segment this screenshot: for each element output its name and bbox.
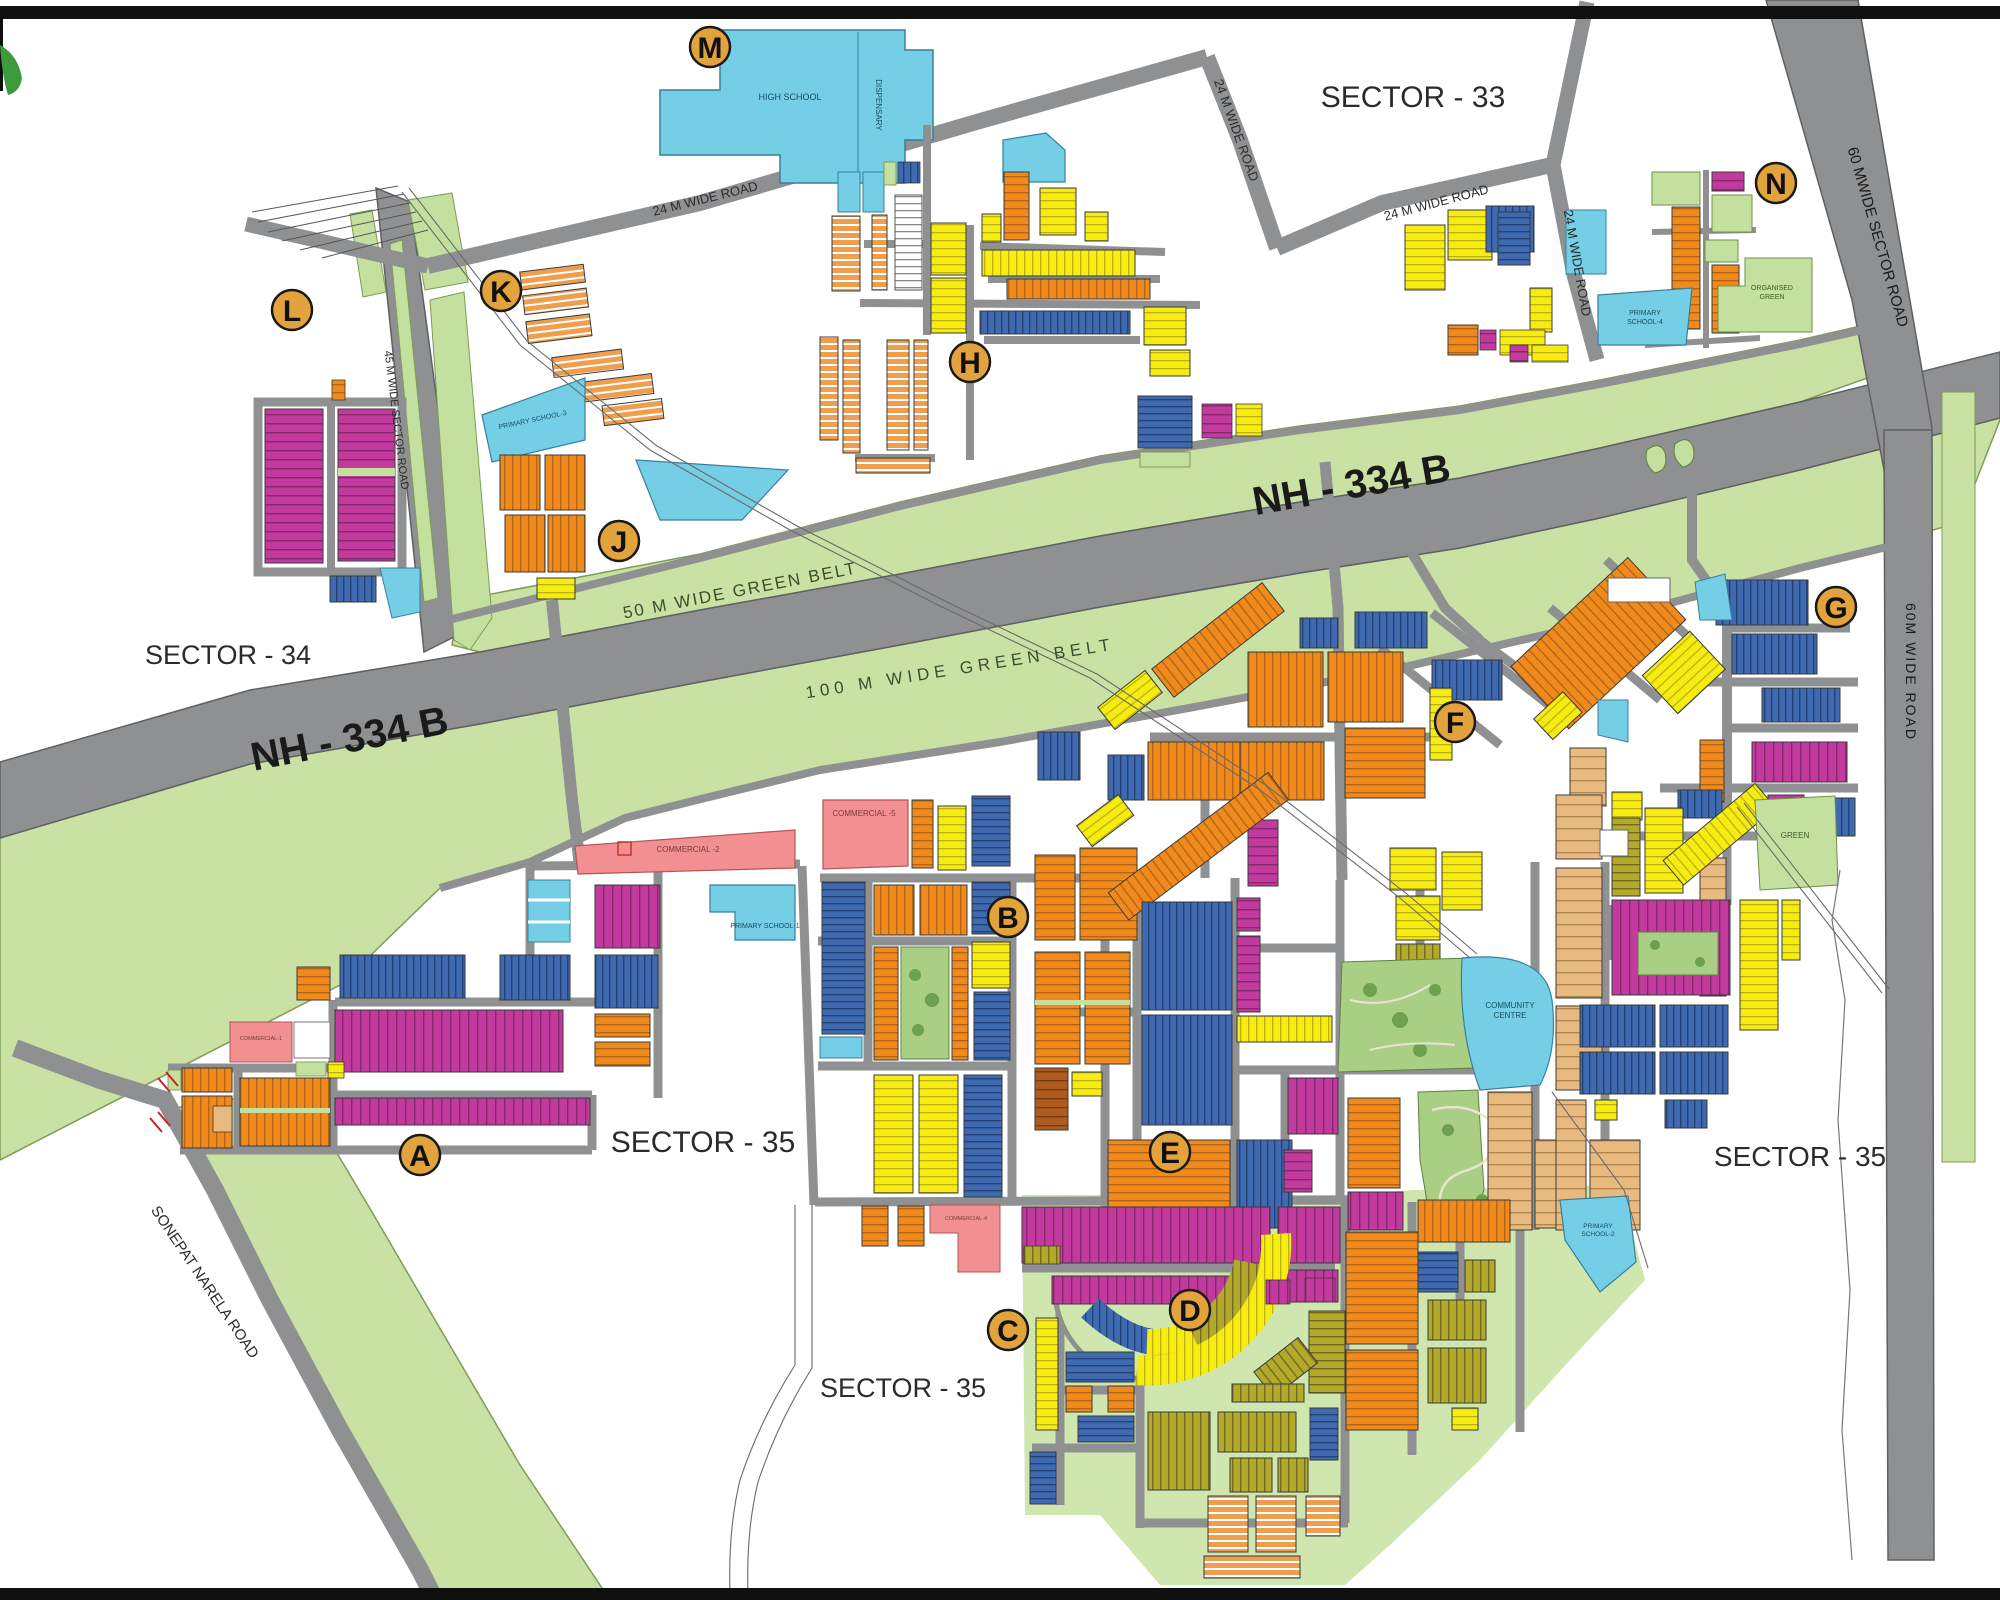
svg-text:E: E (1160, 1137, 1180, 1170)
svg-text:G: G (1824, 592, 1847, 625)
svg-text:60M WIDE ROAD: 60M WIDE ROAD (1903, 603, 1919, 741)
svg-text:ORGANISED: ORGANISED (1751, 285, 1793, 292)
svg-text:DISPENSARY: DISPENSARY (874, 79, 883, 131)
svg-text:SECTOR - 34: SECTOR - 34 (145, 640, 311, 670)
svg-text:COMMERCIAL-1: COMMERCIAL-1 (240, 1036, 282, 1042)
svg-text:D: D (1179, 1295, 1201, 1328)
svg-text:J: J (611, 526, 628, 559)
svg-text:SECTOR - 35: SECTOR - 35 (820, 1373, 986, 1403)
svg-text:SCHOOL-4: SCHOOL-4 (1627, 319, 1663, 326)
svg-text:COMMUNITY: COMMUNITY (1485, 1001, 1535, 1010)
svg-text:SECTOR - 35: SECTOR - 35 (611, 1126, 796, 1159)
svg-text:L: L (283, 295, 301, 328)
svg-text:A: A (409, 1140, 431, 1173)
svg-text:C: C (997, 1315, 1019, 1348)
svg-text:COMMERCIAL-4: COMMERCIAL-4 (945, 1216, 987, 1222)
svg-text:K: K (490, 276, 512, 309)
svg-text:SCHOOL-2: SCHOOL-2 (1581, 1231, 1615, 1238)
svg-text:HIGH SCHOOL: HIGH SCHOOL (758, 92, 821, 102)
svg-text:CENTRE: CENTRE (1494, 1011, 1527, 1020)
svg-text:PRIMARY SCHOOL-1: PRIMARY SCHOOL-1 (730, 923, 799, 930)
svg-text:SECTOR - 35: SECTOR - 35 (1714, 1141, 1886, 1172)
svg-text:PRIMARY: PRIMARY (1629, 310, 1661, 317)
svg-text:SECTOR - 33: SECTOR - 33 (1321, 81, 1506, 114)
svg-text:PRIMARY: PRIMARY (1583, 1223, 1613, 1230)
svg-text:H: H (959, 347, 981, 380)
svg-text:F: F (1446, 707, 1464, 740)
svg-text:COMMERCIAL -5: COMMERCIAL -5 (832, 809, 896, 818)
svg-text:GREEN: GREEN (1781, 831, 1810, 840)
svg-text:B: B (997, 902, 1019, 935)
svg-text:M: M (698, 32, 723, 65)
svg-text:GREEN: GREEN (1760, 294, 1785, 301)
svg-text:N: N (1765, 168, 1787, 201)
svg-text:COMMERCIAL -2: COMMERCIAL -2 (656, 845, 720, 854)
